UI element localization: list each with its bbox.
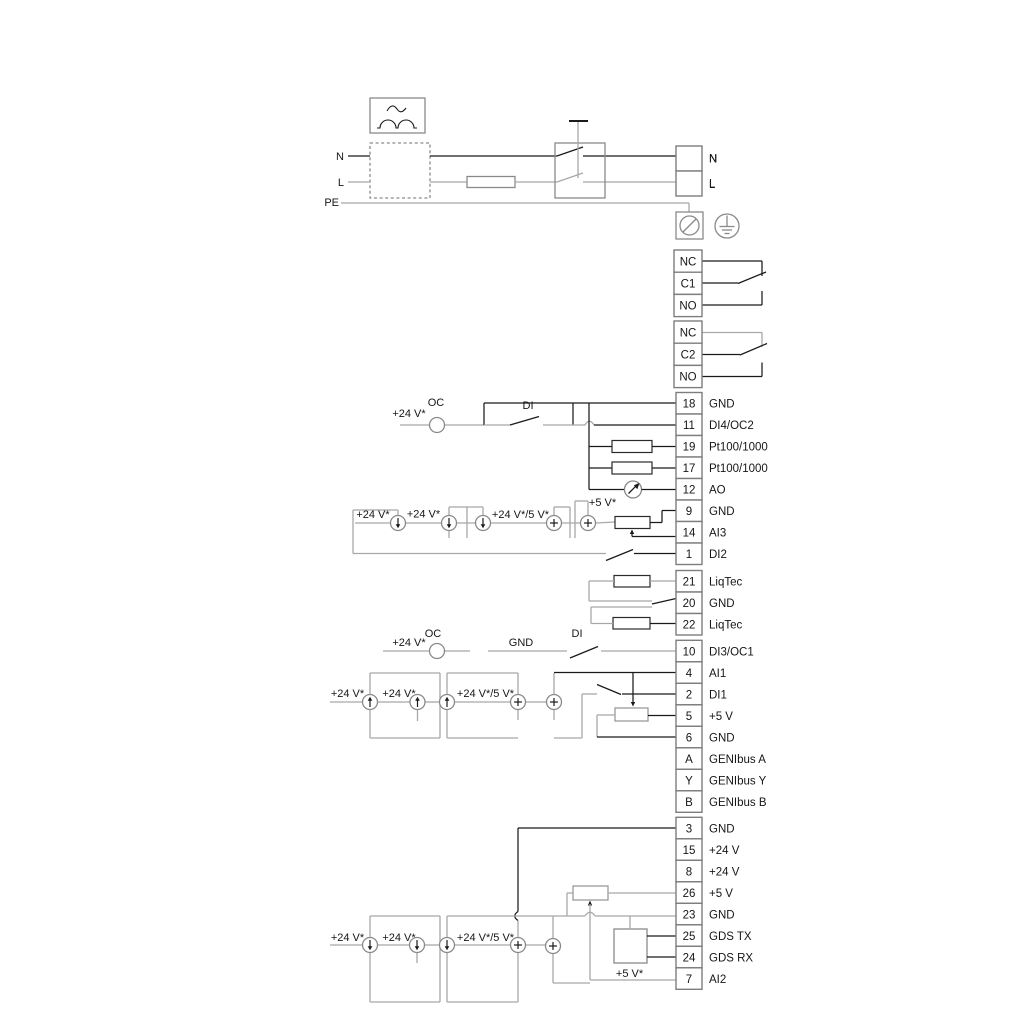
terminal-number: 19 <box>683 441 696 453</box>
voltage-source-icon <box>581 516 596 531</box>
relay-1-wires <box>702 261 766 305</box>
terminal-number: 5 <box>686 711 692 723</box>
open-collector-icon <box>430 644 445 659</box>
terminal-label: AI2 <box>709 974 726 986</box>
wire-label: +5 V* <box>589 497 617 509</box>
source-symbols <box>363 418 596 954</box>
terminal-label: AO <box>709 484 726 496</box>
wire-label: PE <box>324 197 339 209</box>
wire-label: +5 V* <box>616 968 644 980</box>
terminal-number: 22 <box>683 619 696 631</box>
controller-dashed-box <box>370 143 430 198</box>
ai1-sensor-options <box>330 673 676 739</box>
current-source-up-icon <box>363 695 378 710</box>
di1-switch-blade <box>597 685 621 695</box>
terminal-number: NO <box>679 301 696 313</box>
terminal-label: GENIbus Y <box>709 775 767 787</box>
terminal-number: B <box>685 797 693 809</box>
terminal-label: DI4/OC2 <box>709 420 754 432</box>
wire-label: +24 V* <box>356 509 390 521</box>
wire-label: OC <box>425 628 442 640</box>
terminal-label: LiqTec <box>709 576 742 588</box>
terminal-number: 12 <box>683 484 696 496</box>
terminal-number: C2 <box>681 350 696 362</box>
resistor-icon <box>612 441 652 453</box>
terminal-label: AI1 <box>709 668 726 680</box>
terminal-number: C1 <box>681 279 696 291</box>
current-source-down-icon <box>363 938 378 953</box>
terminal-number: 25 <box>683 931 696 943</box>
di-switch-blade <box>510 417 539 426</box>
terminal-label: GDS TX <box>709 931 752 943</box>
wire-label: L <box>338 177 344 189</box>
terminal-number: 17 <box>683 463 696 475</box>
terminal-number: 6 <box>686 732 692 744</box>
terminal-number: 10 <box>683 646 696 658</box>
terminal-number: Y <box>685 775 693 787</box>
terminal-number: 3 <box>686 823 692 835</box>
liqtec-circuit <box>589 576 676 630</box>
current-source-up-icon <box>440 695 455 710</box>
current-source-down-icon <box>476 516 491 531</box>
terminal-label: GND <box>709 398 735 410</box>
relay-2-wires <box>702 333 767 377</box>
wire-label: +24 V*/5 V* <box>457 688 515 700</box>
terminal-label: GND <box>709 732 735 744</box>
wiper-arrow <box>630 530 634 535</box>
resistor-icon <box>614 576 650 588</box>
terminal-number: 11 <box>683 420 695 432</box>
terminal-label: DI3/OC1 <box>709 646 754 658</box>
terminal-label: GND <box>709 506 735 518</box>
terminal-label: DI1 <box>709 689 727 701</box>
terminal-label: GND <box>709 598 735 610</box>
terminal-number: 14 <box>683 527 696 539</box>
double-pole-switch-icon <box>555 143 605 198</box>
wire-label: N <box>709 153 717 165</box>
wire-label: GND <box>509 637 534 649</box>
terminal-number: 9 <box>686 506 692 518</box>
terminal-label: +24 V <box>709 866 740 878</box>
terminal-cell <box>676 146 702 171</box>
wire-label: +24 V* <box>331 688 365 700</box>
terminal-number: NC <box>680 327 697 339</box>
voltage-source-icon <box>546 939 561 954</box>
di2-switch-blade <box>606 550 633 561</box>
terminal-number: 7 <box>686 974 692 986</box>
wire-label: +24 V*/5 V* <box>457 932 515 944</box>
wire-label: +24 V* <box>382 688 416 700</box>
relay-contact-blade <box>738 272 766 284</box>
gds-sensor-box <box>614 929 647 963</box>
current-source-down-icon <box>440 938 455 953</box>
terminal-number: 20 <box>683 598 696 610</box>
potentiometer-icon <box>615 517 650 529</box>
wire-label: DI <box>572 628 583 640</box>
terminal-number: 2 <box>686 689 692 701</box>
terminal-number: NC <box>680 256 697 268</box>
terminal-number: A <box>685 754 693 766</box>
terminal-number: 4 <box>686 668 693 680</box>
relay-contact-blade <box>740 344 767 356</box>
current-source-down-icon <box>442 516 457 531</box>
fuse-icon <box>467 177 515 188</box>
wire-label: +24 V*/5 V* <box>492 509 550 521</box>
open-collector-icon <box>430 418 445 433</box>
current-source-down-icon <box>391 516 406 531</box>
pt100-ao-circuit <box>589 403 676 498</box>
diagram-canvas: NLNCC1NONCC2NO18GND11DI4/OC219Pt100/1000… <box>0 0 1024 1024</box>
terminal-label: DI2 <box>709 549 727 561</box>
terminal-number: 18 <box>683 398 696 410</box>
terminal-label: AI3 <box>709 527 726 539</box>
wire-label: DI <box>523 400 534 412</box>
wire-label: +24 V* <box>392 408 426 420</box>
wire-label: +24 V* <box>331 932 365 944</box>
wiper-arrow <box>631 702 635 707</box>
terminal-number: 15 <box>683 845 696 857</box>
wiring-diagram: NLNCC1NONCC2NO18GND11DI4/OC219Pt100/1000… <box>0 0 1024 1024</box>
wire-label: L <box>709 179 715 191</box>
terminal-number: 8 <box>686 866 692 878</box>
terminal-label: LiqTec <box>709 619 742 631</box>
potentiometer-icon <box>573 886 608 900</box>
terminal-label: GND <box>709 823 735 835</box>
wire-label: +24 V* <box>407 509 441 521</box>
terminal-cell <box>676 171 702 196</box>
terminal-number: 26 <box>683 888 696 900</box>
voltage-source-icon <box>547 695 562 710</box>
resistor-icon <box>612 462 652 474</box>
terminal-number: 21 <box>683 576 696 588</box>
wire-label: +24 V* <box>382 932 416 944</box>
terminal-number: 1 <box>686 549 692 561</box>
wire-label: OC <box>428 397 445 409</box>
wire-label: N <box>336 151 344 163</box>
terminal-label: GENIbus A <box>709 754 766 766</box>
terminal-label: +5 V <box>709 711 733 723</box>
potentiometer-icon <box>615 708 648 721</box>
terminal-number: 23 <box>683 909 696 921</box>
di-switch-blade <box>570 647 598 659</box>
terminal-label: Pt100/1000 <box>709 463 768 475</box>
terminal-blocks: NLNCC1NONCC2NO18GND11DI4/OC219Pt100/1000… <box>674 146 768 989</box>
wire-label: +24 V* <box>392 637 426 649</box>
terminal-label: +5 V <box>709 888 733 900</box>
terminal-label: GENIbus B <box>709 797 767 809</box>
terminal-label: GDS RX <box>709 952 753 964</box>
terminal-label: Pt100/1000 <box>709 441 768 453</box>
n-switch-blade <box>557 147 583 156</box>
l-switch-blade <box>557 173 583 182</box>
floating-labels: NLPENL+24 V*OCDI+24 V*+24 V*+24 V*/5 V*+… <box>324 151 717 980</box>
terminal-number: NO <box>679 372 696 384</box>
terminal-number: 24 <box>683 952 696 964</box>
terminal-label: +24 V <box>709 845 740 857</box>
terminal-label: GND <box>709 909 735 921</box>
resistor-icon <box>613 618 650 630</box>
